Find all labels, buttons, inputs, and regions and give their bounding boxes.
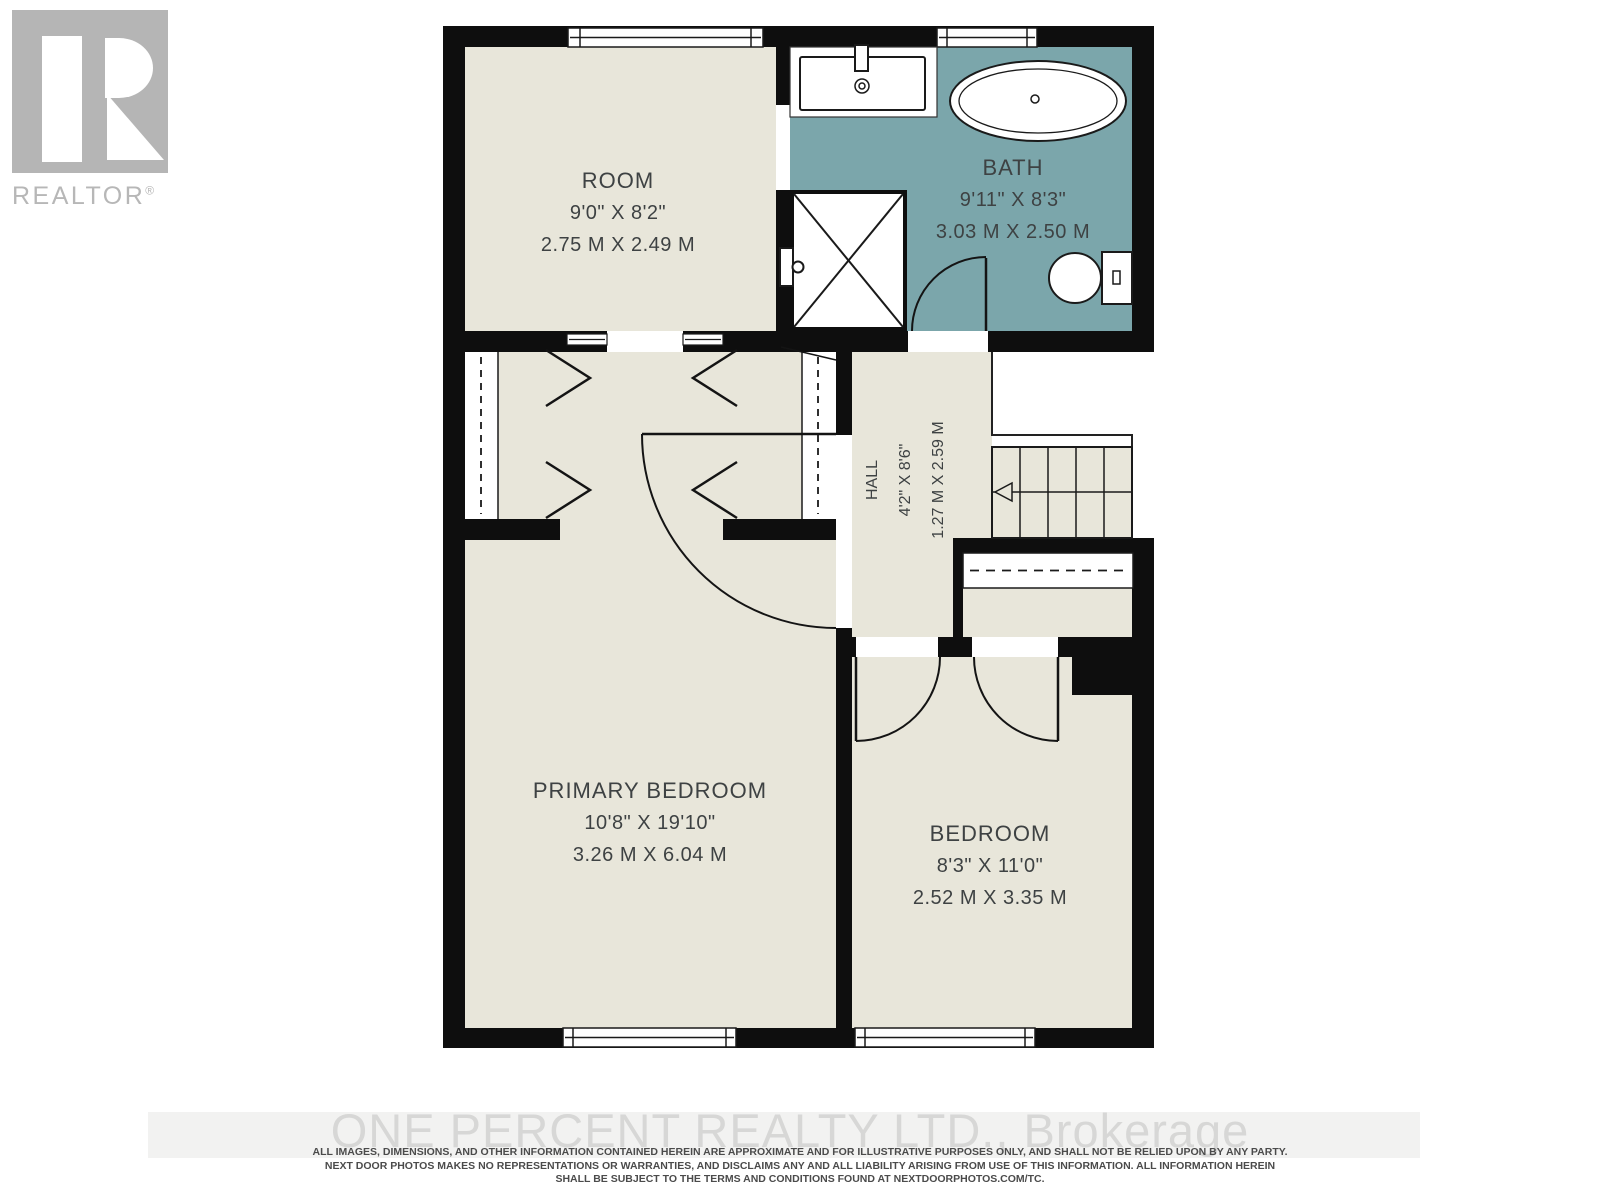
hall-label: HALL 4'2" X 8'6" 1.27 M X 2.59 M: [856, 370, 960, 590]
disclaimer-line-3: SHALL BE SUBJECT TO THE TERMS AND CONDIT…: [140, 1173, 1460, 1187]
bedroom-closet-door-opening: [972, 637, 1058, 657]
room-label-imperial: 9'0" X 8'2": [541, 197, 695, 229]
floor-plan-page: REALTOR®: [0, 0, 1600, 1200]
disclaimer-line-1: ALL IMAGES, DIMENSIONS, AND OTHER INFORM…: [140, 1146, 1460, 1160]
right-closet-floor: [737, 352, 802, 519]
top-wall: [443, 26, 1154, 47]
bath-window: [937, 28, 1037, 47]
bath-label-name: BATH: [936, 152, 1090, 184]
left-closet-wall: [443, 519, 560, 540]
stairwell-border: [992, 352, 1132, 447]
toilet: [1049, 252, 1132, 304]
hall-label-imperial: 4'2" X 8'6": [889, 370, 922, 590]
room-bath-opening: [776, 105, 790, 190]
bath-door-opening: [908, 331, 988, 352]
bath-label: BATH 9'11" X 8'3" 3.03 M X 2.50 M: [936, 152, 1090, 248]
bedroom-label: BEDROOM 8'3" X 11'0" 2.52 M X 3.35 M: [913, 818, 1067, 914]
room-label-metric: 2.75 M X 2.49 M: [541, 229, 695, 261]
registered-trademark-symbol: ®: [145, 184, 154, 198]
faucet-icon: [855, 45, 868, 71]
realtor-logo-icon: [12, 10, 168, 173]
bedroom-door-opening: [856, 637, 938, 657]
room-label-name: ROOM: [541, 165, 695, 197]
bathtub: [950, 61, 1126, 141]
primary-bedroom-window: [563, 1028, 736, 1047]
shower-valve-icon: [780, 248, 793, 286]
bedroom-label-imperial: 8'3" X 11'0": [913, 850, 1067, 882]
right-closet-shelf: [802, 352, 836, 519]
disclaimer: ALL IMAGES, DIMENSIONS, AND OTHER INFORM…: [140, 1146, 1460, 1187]
bedroom-label-name: BEDROOM: [913, 818, 1067, 850]
bath-label-metric: 3.03 M X 2.50 M: [936, 216, 1090, 248]
closet-vestibule-floor: [963, 588, 1133, 637]
vestibule-passage-floor: [560, 519, 723, 540]
right-wall-lower: [1132, 538, 1154, 1048]
vestibule-opening: [607, 331, 683, 352]
primary-bedroom-label-name: PRIMARY BEDROOM: [533, 775, 767, 807]
bedroom-label-metric: 2.52 M X 3.35 M: [913, 882, 1067, 914]
vanity-sink: [790, 45, 937, 117]
under-stairs-wall: [953, 538, 1154, 553]
disclaimer-line-2: NEXT DOOR PHOTOS MAKES NO REPRESENTATION…: [140, 1160, 1460, 1174]
hall-label-name: HALL: [856, 370, 889, 590]
bedroom-window: [855, 1028, 1035, 1047]
under-stairs-closet: [963, 553, 1133, 588]
right-wall-upper: [1132, 26, 1154, 352]
realtor-logo: REALTOR®: [12, 10, 172, 211]
realtor-logo-caption: REALTOR®: [12, 182, 172, 211]
chimney-block: [1072, 657, 1132, 695]
bath-label-imperial: 9'11" X 8'3": [936, 184, 1090, 216]
shower: [780, 192, 905, 329]
floor-plan-drawing: [0, 0, 1600, 1200]
realtor-logo-text: REALTOR: [12, 182, 145, 210]
right-closet-wall: [723, 519, 852, 540]
left-closet-floor: [498, 352, 546, 519]
hall-bedroom-wall-upper: [836, 352, 852, 435]
middle-wall: [443, 331, 1154, 352]
primary-bedroom-label-imperial: 10'8" X 19'10": [533, 807, 767, 839]
room-window: [568, 28, 763, 47]
primary-bedroom-label: PRIMARY BEDROOM 10'8" X 19'10" 3.26 M X …: [533, 775, 767, 871]
hall-bedroom-wall-lower: [836, 628, 852, 1028]
bottom-wall: [443, 1028, 1154, 1048]
room-label: ROOM 9'0" X 8'2" 2.75 M X 2.49 M: [541, 165, 695, 261]
primary-door-opening: [836, 435, 852, 628]
primary-bedroom-label-metric: 3.26 M X 6.04 M: [533, 839, 767, 871]
stairs: [992, 352, 1132, 538]
hall-label-metric: 1.27 M X 2.59 M: [922, 370, 955, 590]
